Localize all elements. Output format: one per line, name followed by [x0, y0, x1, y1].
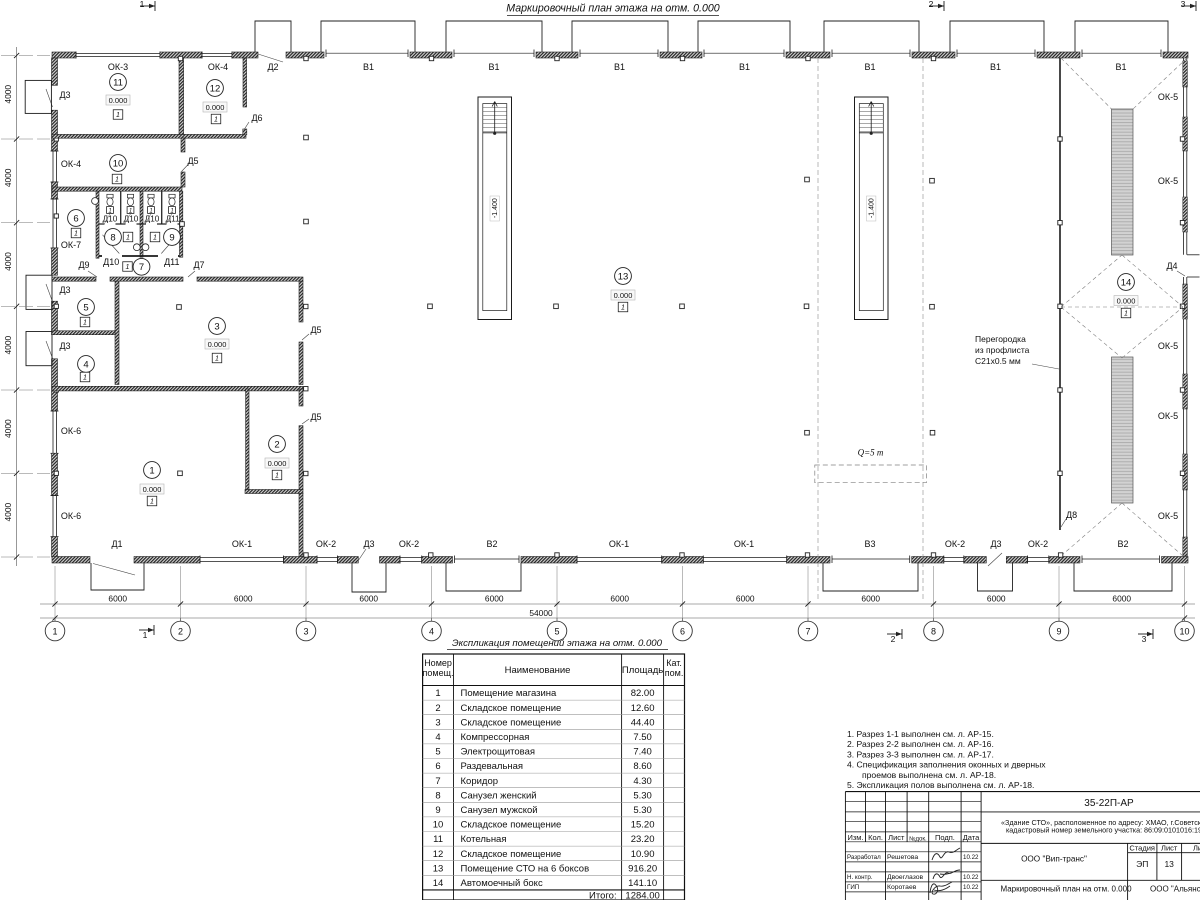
svg-text:6000: 6000 — [1112, 594, 1131, 604]
svg-text:Лист: Лист — [1161, 843, 1178, 852]
svg-text:Складское помещение: Складское помещение — [461, 717, 562, 728]
svg-text:4000: 4000 — [3, 419, 13, 438]
svg-text:2: 2 — [274, 439, 279, 450]
svg-text:ООО "Вип-транс": ООО "Вип-транс" — [1021, 855, 1087, 864]
svg-text:0.000: 0.000 — [208, 340, 227, 349]
svg-text:пом.: пом. — [665, 668, 684, 678]
svg-text:ОК-2: ОК-2 — [316, 539, 336, 549]
svg-text:ОК-5: ОК-5 — [1158, 411, 1178, 421]
svg-text:0.000: 0.000 — [109, 96, 128, 105]
svg-text:-1.400: -1.400 — [869, 198, 876, 218]
svg-text:7.50: 7.50 — [633, 732, 652, 743]
svg-text:В1: В1 — [864, 62, 875, 72]
svg-text:4: 4 — [83, 359, 88, 370]
svg-text:Разработал: Разработал — [847, 854, 881, 861]
svg-text:6: 6 — [435, 761, 440, 772]
svg-text:7: 7 — [435, 776, 440, 787]
svg-text:Наименование: Наименование — [505, 665, 571, 676]
svg-text:ОК-1: ОК-1 — [232, 539, 252, 549]
svg-text:10.22: 10.22 — [963, 854, 979, 861]
svg-text:Кол.: Кол. — [868, 833, 883, 842]
svg-text:Помещение магазина: Помещение магазина — [461, 688, 558, 699]
svg-text:Д11: Д11 — [166, 215, 180, 224]
svg-text:Решетова: Решетова — [887, 854, 918, 861]
svg-text:Котельная: Котельная — [461, 834, 507, 845]
svg-text:Д10: Д10 — [124, 215, 139, 224]
svg-text:С21х0.5 мм: С21х0.5 мм — [975, 356, 1021, 366]
svg-text:4.30: 4.30 — [633, 776, 652, 787]
svg-text:Д2: Д2 — [267, 62, 278, 72]
svg-text:6000: 6000 — [359, 594, 378, 604]
svg-text:1: 1 — [115, 177, 119, 184]
svg-text:В1: В1 — [363, 62, 374, 72]
svg-text:5.30: 5.30 — [633, 805, 652, 816]
svg-text:Номер: Номер — [424, 658, 452, 668]
svg-text:ОК-5: ОК-5 — [1158, 176, 1178, 186]
svg-text:44.40: 44.40 — [631, 717, 655, 728]
svg-text:ЭП: ЭП — [1136, 859, 1148, 869]
svg-text:Q=5 т: Q=5 т — [858, 448, 884, 458]
svg-text:Электрощитовая: Электрощитовая — [461, 747, 536, 758]
svg-text:Лист: Лист — [888, 833, 905, 842]
svg-text:1: 1 — [52, 626, 57, 636]
svg-text:В1: В1 — [614, 62, 625, 72]
svg-text:Подп.: Подп. — [935, 833, 955, 842]
svg-text:3: 3 — [435, 717, 440, 728]
svg-text:Дата: Дата — [963, 833, 980, 842]
svg-text:9: 9 — [1056, 626, 1061, 636]
svg-text:12: 12 — [210, 83, 221, 94]
svg-text:Д10: Д10 — [103, 257, 119, 267]
svg-text:Д3: Д3 — [990, 539, 1001, 549]
svg-text:8: 8 — [110, 232, 115, 243]
svg-text:5: 5 — [435, 747, 440, 758]
svg-text:10.22: 10.22 — [963, 874, 979, 881]
svg-text:9: 9 — [435, 805, 440, 816]
svg-text:ОК-3: ОК-3 — [108, 62, 128, 72]
svg-text:Итого:: Итого: — [589, 891, 617, 900]
svg-text:Складское помещение: Складское помещение — [461, 849, 562, 860]
svg-text:1284.00: 1284.00 — [625, 891, 659, 900]
svg-text:4: 4 — [435, 732, 440, 743]
svg-text:14: 14 — [1121, 277, 1132, 288]
svg-text:-1.400: -1.400 — [492, 198, 499, 218]
svg-text:Маркировочный план на отм. 0.0: Маркировочный план на отм. 0.000 — [1000, 885, 1132, 894]
svg-text:Коротаев: Коротаев — [887, 884, 917, 891]
svg-text:1: 1 — [275, 473, 279, 480]
svg-text:Складское помещение: Складское помещение — [461, 703, 562, 714]
svg-text:ОК-2: ОК-2 — [945, 539, 965, 549]
svg-text:1: 1 — [435, 688, 440, 699]
svg-text:ОК-4: ОК-4 — [61, 159, 81, 169]
svg-text:ОК-5: ОК-5 — [1158, 511, 1178, 521]
svg-text:14: 14 — [433, 878, 444, 889]
svg-text:Д4: Д4 — [1166, 261, 1177, 271]
svg-text:2: 2 — [178, 626, 183, 636]
svg-text:10: 10 — [1179, 626, 1189, 636]
svg-text:13: 13 — [1164, 859, 1174, 869]
svg-text:В2: В2 — [486, 539, 497, 549]
svg-text:Санузел мужской: Санузел мужской — [461, 805, 538, 816]
svg-text:Н. контр.: Н. контр. — [847, 874, 873, 881]
svg-text:4000: 4000 — [3, 502, 13, 521]
svg-text:6000: 6000 — [108, 594, 127, 604]
svg-text:7.40: 7.40 — [633, 747, 652, 758]
svg-text:1: 1 — [214, 117, 218, 124]
svg-text:Д1: Д1 — [111, 539, 122, 549]
svg-text:2: 2 — [929, 0, 934, 9]
svg-text:6000: 6000 — [234, 594, 253, 604]
svg-text:6000: 6000 — [861, 594, 880, 604]
svg-text:ОК-2: ОК-2 — [1028, 539, 1048, 549]
svg-text:10: 10 — [433, 820, 444, 831]
svg-text:2. Разрез 2-2 выполнен см. л.: 2. Разрез 2-2 выполнен см. л. АР-16. — [847, 739, 994, 749]
svg-text:Санузел женский: Санузел женский — [461, 790, 537, 801]
svg-text:помещ.: помещ. — [423, 668, 454, 678]
svg-text:ОК-7: ОК-7 — [61, 240, 81, 250]
svg-text:ОК-6: ОК-6 — [61, 511, 81, 521]
svg-text:141.10: 141.10 — [628, 878, 657, 889]
svg-text:4000: 4000 — [3, 85, 13, 104]
svg-text:12.60: 12.60 — [631, 703, 655, 714]
svg-text:1: 1 — [215, 356, 219, 363]
svg-text:Автомоечный бокс: Автомоечный бокс — [461, 878, 543, 889]
svg-text:ОК-4: ОК-4 — [208, 62, 228, 72]
svg-text:3. Разрез 3-3 выполнен см. л.: 3. Разрез 3-3 выполнен см. л. АР-17. — [847, 749, 994, 759]
svg-text:Д3: Д3 — [59, 285, 70, 295]
svg-text:Д3: Д3 — [363, 539, 374, 549]
svg-text:ОК-1: ОК-1 — [734, 539, 754, 549]
svg-text:6: 6 — [73, 213, 78, 224]
svg-text:Раздевальная: Раздевальная — [461, 761, 524, 772]
svg-text:1: 1 — [153, 235, 157, 242]
svg-text:7: 7 — [139, 262, 144, 273]
svg-text:1: 1 — [74, 231, 78, 238]
svg-text:3: 3 — [1181, 0, 1186, 9]
svg-text:2: 2 — [891, 634, 896, 644]
svg-text:Д9: Д9 — [78, 260, 89, 270]
svg-text:3: 3 — [303, 626, 308, 636]
svg-text:Компрессорная: Компрессорная — [461, 732, 530, 743]
svg-text:15.20: 15.20 — [631, 820, 655, 831]
svg-text:12: 12 — [433, 849, 444, 860]
svg-text:Двоеглазов: Двоеглазов — [887, 874, 924, 881]
svg-text:Площадь: Площадь — [622, 665, 663, 676]
svg-text:Д8: Д8 — [1066, 510, 1077, 520]
svg-text:4: 4 — [429, 626, 434, 636]
svg-text:1: 1 — [621, 305, 625, 312]
svg-text:1: 1 — [149, 465, 154, 476]
svg-text:1: 1 — [143, 630, 148, 640]
svg-text:13: 13 — [433, 863, 444, 874]
svg-text:5. Экспликация полов выполнена: 5. Экспликация полов выполнена см. л. АР… — [847, 780, 1034, 790]
svg-text:Стадия: Стадия — [1129, 843, 1155, 852]
svg-text:Складское помещение: Складское помещение — [461, 820, 562, 831]
svg-text:кадастровый номер земельного у: кадастровый номер земельного участка: 86… — [1006, 825, 1200, 834]
svg-text:6000: 6000 — [736, 594, 755, 604]
svg-text:ОК-5: ОК-5 — [1158, 92, 1178, 102]
svg-text:916.20: 916.20 — [628, 863, 657, 874]
svg-text:Перегородка: Перегородка — [975, 334, 1026, 344]
svg-text:5.30: 5.30 — [633, 790, 652, 801]
svg-text:В1: В1 — [1115, 62, 1126, 72]
svg-text:11: 11 — [113, 77, 123, 88]
svg-text:ОК-6: ОК-6 — [61, 426, 81, 436]
svg-text:Листов: Листов — [1193, 843, 1200, 852]
svg-text:6000: 6000 — [485, 594, 504, 604]
svg-text:82.00: 82.00 — [631, 688, 655, 699]
svg-text:ОК-5: ОК-5 — [1158, 341, 1178, 351]
svg-text:0.000: 0.000 — [1117, 296, 1136, 305]
svg-text:35-22П-АР: 35-22П-АР — [1084, 798, 1134, 809]
svg-text:Д5: Д5 — [310, 325, 321, 335]
svg-text:3: 3 — [1142, 634, 1147, 644]
svg-text:1: 1 — [1124, 311, 1128, 318]
svg-text:10.90: 10.90 — [631, 849, 655, 860]
svg-text:6000: 6000 — [987, 594, 1006, 604]
svg-text:Маркировочный план этажа на от: Маркировочный план этажа на отм. 0.000 — [506, 3, 719, 15]
svg-text:ГИП: ГИП — [847, 884, 859, 891]
svg-text:В2: В2 — [1117, 539, 1128, 549]
svg-text:Изм.: Изм. — [847, 833, 863, 842]
svg-text:1: 1 — [83, 320, 87, 327]
svg-text:23.20: 23.20 — [631, 834, 655, 845]
svg-text:1: 1 — [126, 264, 130, 271]
svg-text:10: 10 — [113, 158, 124, 169]
svg-text:7: 7 — [805, 626, 810, 636]
svg-text:из профлиста: из профлиста — [975, 345, 1030, 355]
svg-text:ОК-2: ОК-2 — [399, 539, 419, 549]
svg-text:54000: 54000 — [529, 608, 553, 618]
svg-text:Д3: Д3 — [59, 90, 70, 100]
svg-text:1. Разрез 1-1 выполнен см. л.: 1. Разрез 1-1 выполнен см. л. АР-15. — [847, 729, 994, 739]
svg-text:2: 2 — [435, 703, 440, 714]
svg-text:Д11: Д11 — [164, 257, 179, 267]
svg-text:ООО "Альянс: ООО "Альянс — [1150, 885, 1200, 894]
svg-text:0.000: 0.000 — [143, 485, 162, 494]
svg-text:1: 1 — [116, 112, 120, 119]
svg-text:1: 1 — [140, 0, 145, 9]
svg-text:1: 1 — [150, 499, 154, 506]
svg-text:Д7: Д7 — [193, 260, 204, 270]
svg-text:8.60: 8.60 — [633, 761, 652, 772]
svg-text:5: 5 — [83, 302, 88, 313]
svg-text:ОК-1: ОК-1 — [609, 539, 629, 549]
svg-text:Помещение СТО на 6 боксов: Помещение СТО на 6 боксов — [461, 863, 590, 874]
svg-text:В1: В1 — [488, 62, 499, 72]
svg-text:11: 11 — [433, 834, 443, 845]
svg-text:1: 1 — [83, 375, 87, 382]
svg-text:0.000: 0.000 — [614, 291, 633, 300]
svg-text:13: 13 — [618, 271, 629, 282]
svg-text:Д10: Д10 — [145, 215, 160, 224]
svg-text:Экспликация помещений этажа на: Экспликация помещений этажа на отм. 0.00… — [452, 638, 663, 649]
svg-text:6: 6 — [680, 626, 685, 636]
svg-text:Кат.: Кат. — [666, 658, 682, 668]
svg-text:9: 9 — [169, 232, 174, 243]
svg-text:4000: 4000 — [3, 252, 13, 271]
svg-text:Коридор: Коридор — [461, 776, 499, 787]
svg-text:проемов выполнена см. л. АР-18: проемов выполнена см. л. АР-18. — [862, 770, 996, 780]
svg-text:Д5: Д5 — [310, 412, 321, 422]
svg-text:В3: В3 — [864, 539, 875, 549]
svg-text:№док.: №док. — [909, 836, 927, 843]
svg-text:0.000: 0.000 — [268, 459, 287, 468]
svg-text:Д10: Д10 — [103, 215, 118, 224]
svg-text:В1: В1 — [739, 62, 750, 72]
svg-text:0.000: 0.000 — [206, 103, 225, 112]
svg-text:3: 3 — [214, 321, 219, 332]
svg-text:6000: 6000 — [610, 594, 629, 604]
svg-text:1: 1 — [126, 235, 130, 242]
svg-text:4. Спецификация заполнения око: 4. Спецификация заполнения оконных и две… — [847, 760, 1046, 770]
svg-text:4000: 4000 — [3, 335, 13, 354]
svg-text:8: 8 — [931, 626, 936, 636]
svg-text:5: 5 — [554, 626, 559, 636]
svg-text:8: 8 — [435, 790, 440, 801]
svg-text:4000: 4000 — [3, 168, 13, 187]
svg-text:Д5: Д5 — [187, 156, 198, 166]
svg-text:10.22: 10.22 — [963, 884, 979, 891]
svg-text:В1: В1 — [990, 62, 1001, 72]
svg-text:Д3: Д3 — [59, 341, 70, 351]
svg-text:Д6: Д6 — [251, 113, 262, 123]
